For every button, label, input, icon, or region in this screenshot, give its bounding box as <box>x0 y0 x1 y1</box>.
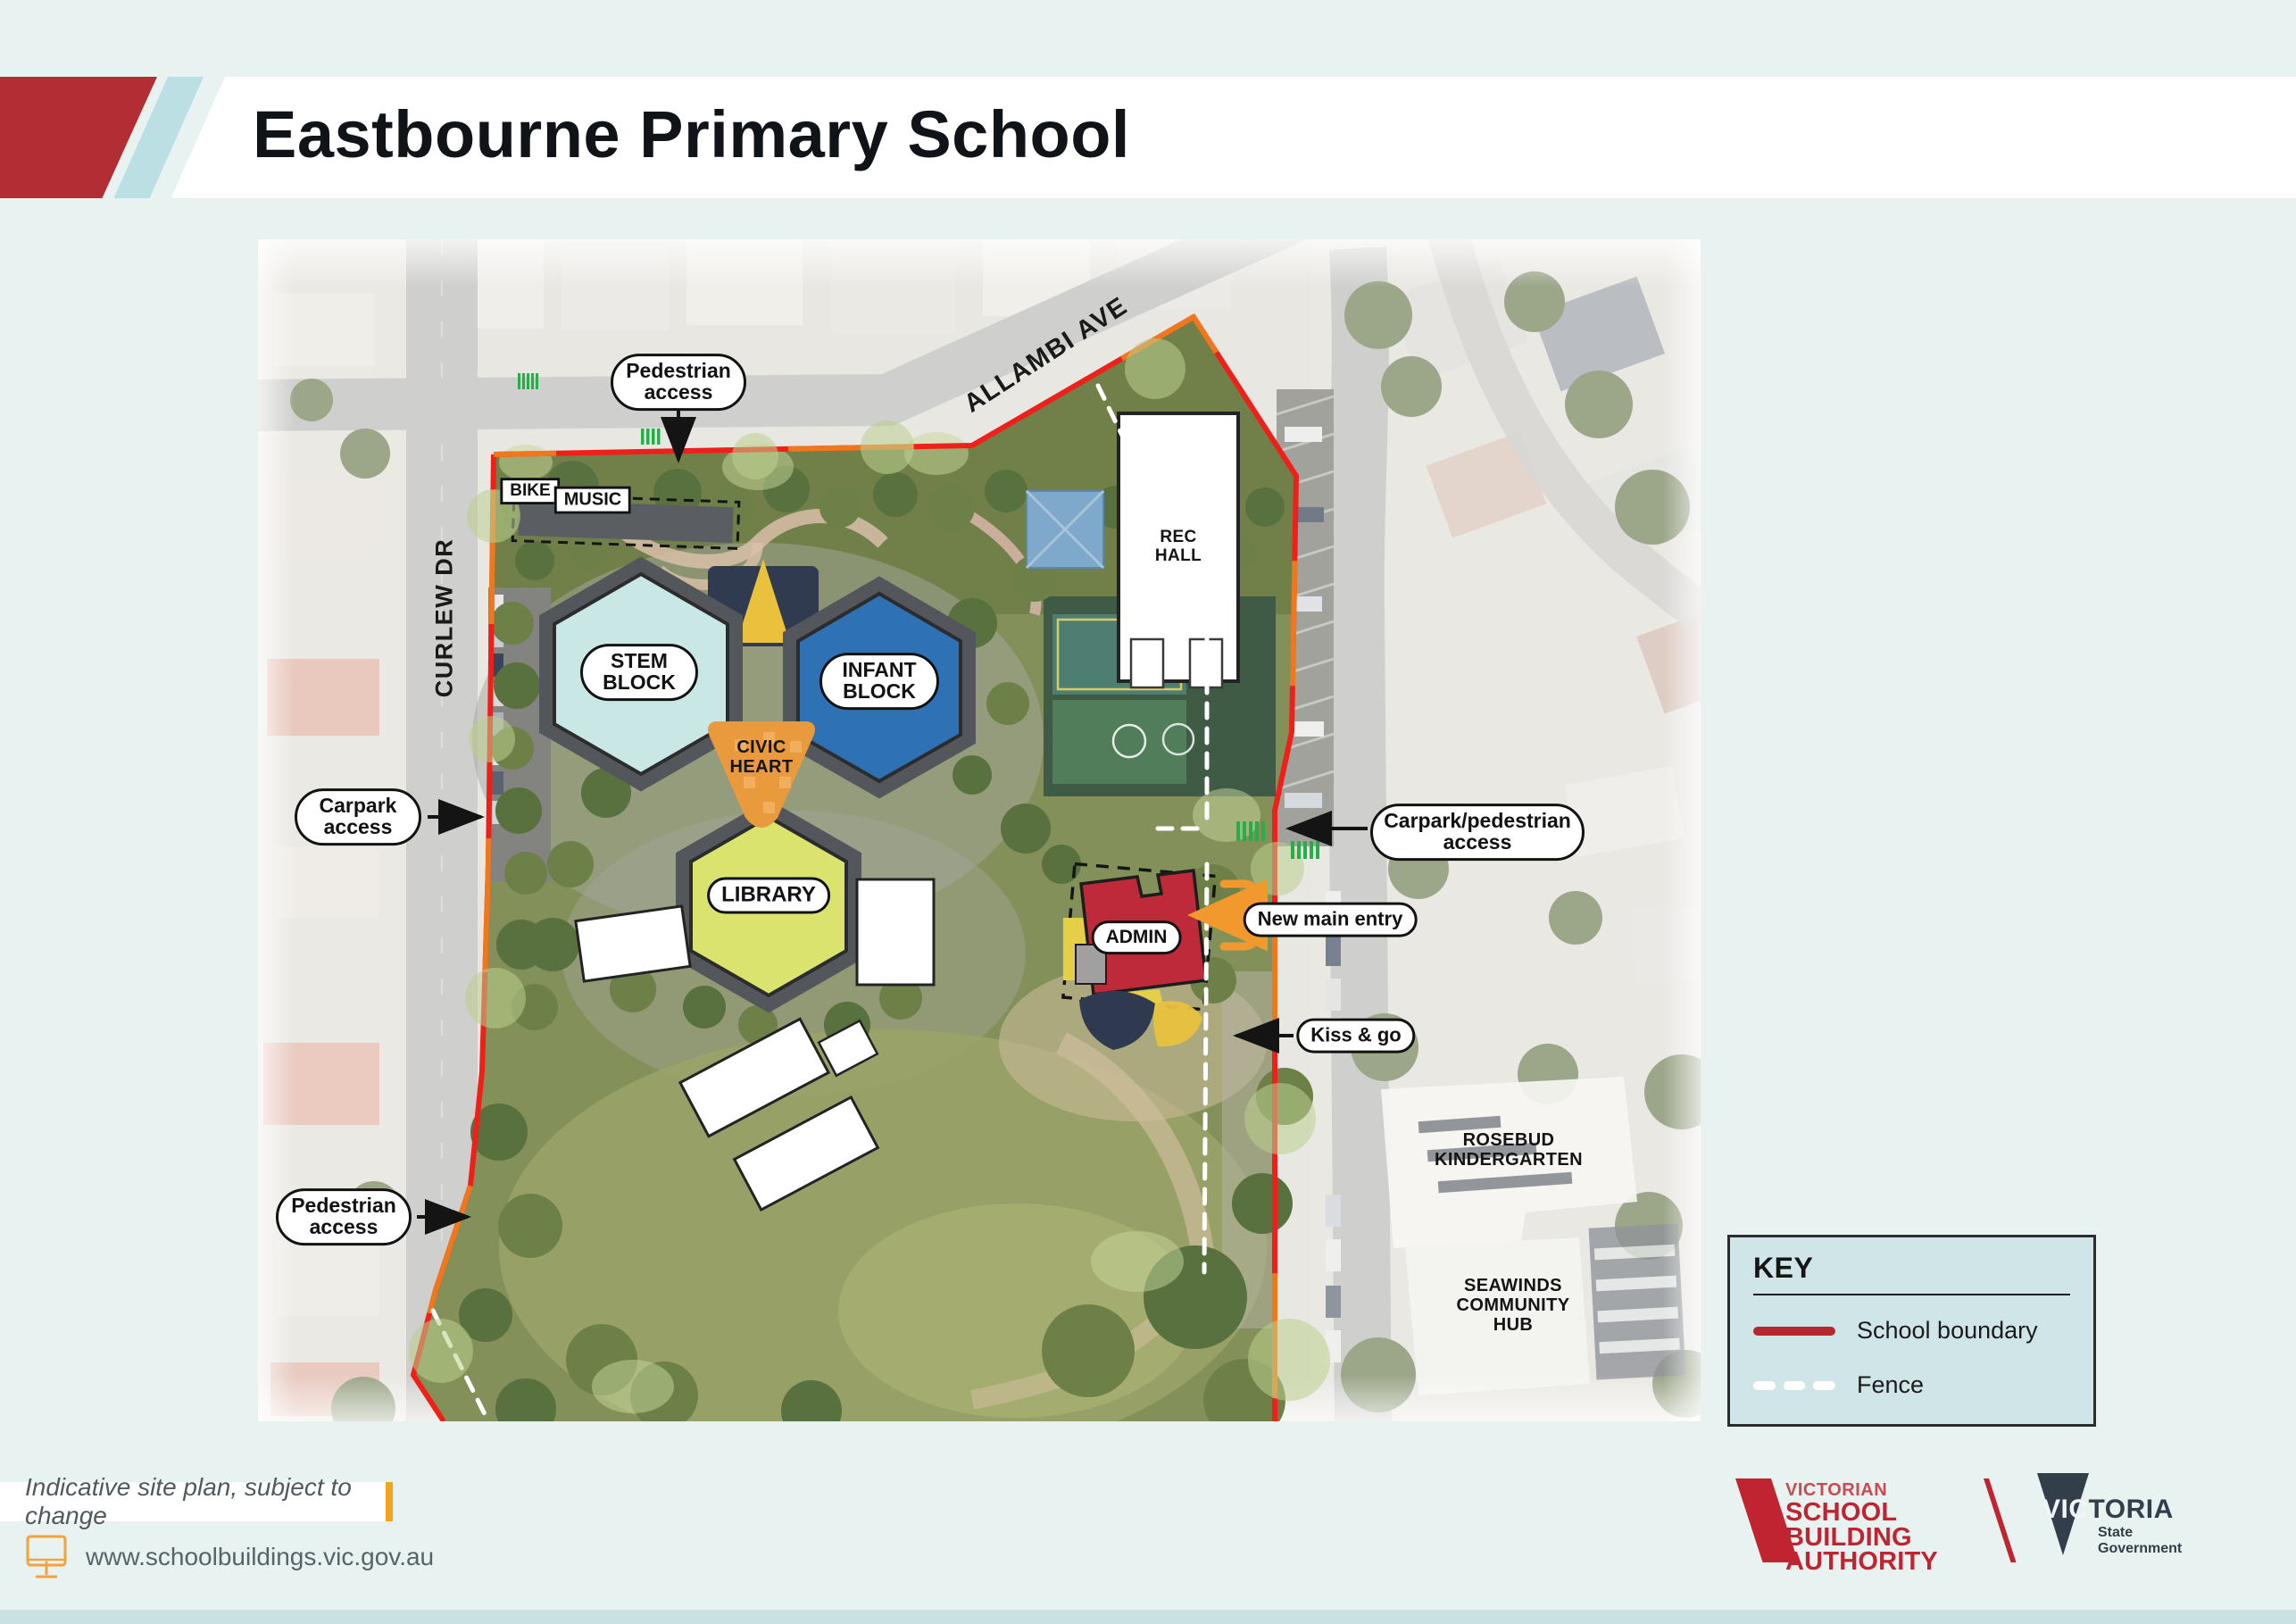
callout-carpark-access: Carpark access <box>295 788 421 845</box>
label-rec-hall: REC HALL <box>1138 529 1219 566</box>
label-library: LIBRARY <box>707 878 830 914</box>
disclaimer-accent-bar <box>386 1482 393 1521</box>
label-admin: ADMIN <box>1092 920 1182 954</box>
key-title: KEY <box>1753 1252 2070 1285</box>
school-boundary-swatch <box>1753 1327 1835 1336</box>
website-row: www.schoolbuildings.vic.gov.au <box>23 1532 434 1582</box>
label-stem-block: STEM BLOCK <box>580 644 698 701</box>
victoria-name-suffix: TORIA <box>2089 1495 2174 1524</box>
callout-carpark-pedestrian-access: Carpark/pedestrian access <box>1370 804 1585 861</box>
callout-new-main-entry: New main entry <box>1244 903 1418 937</box>
callout-kiss-and-go: Kiss & go <box>1296 1019 1415 1054</box>
label-infant-block: INFANT BLOCK <box>819 653 939 710</box>
aerial-site-map: Pedestrian access BIKE MUSIC STEM BLOCK … <box>258 239 1701 1421</box>
key-item-fence: Fence <box>1753 1371 2070 1399</box>
label-bike: BIKE <box>500 478 560 504</box>
map-key: KEY School boundary Fence <box>1727 1235 2096 1427</box>
callout-pedestrian-access-top: Pedestrian access <box>611 354 746 411</box>
victoria-name-prefix: VIC <box>2042 1495 2089 1524</box>
title-banner: Eastbourne Primary School <box>0 77 2296 198</box>
key-item-school-boundary: School boundary <box>1753 1317 2070 1345</box>
label-rosebud-kindergarten: ROSEBUD KINDERGARTEN <box>1413 1130 1605 1170</box>
disclaimer-text: Indicative site plan, subject to change <box>25 1473 386 1530</box>
victoria-sub1: State <box>2098 1525 2182 1541</box>
admin-shape <box>1063 864 1215 1050</box>
victoria-sub2: Government <box>2098 1541 2182 1557</box>
vsba-line3: AUTHORITY <box>1785 1550 2025 1575</box>
bottom-accent-strip <box>0 1610 2296 1624</box>
disclaimer-strip: Indicative site plan, subject to change <box>0 1482 386 1521</box>
label-civic-heart: CIVIC HEART <box>708 737 815 777</box>
victoria-state-logo: VICTORIA State Government <box>2019 1473 2198 1571</box>
label-seawinds-community-hub: SEAWINDS COMMUNITY HUB <box>1442 1276 1585 1335</box>
site-plan-page: Eastbourne Primary School <box>0 0 2296 1624</box>
website-url: www.schoolbuildings.vic.gov.au <box>86 1543 434 1571</box>
vsba-logo: VICTORIAN SCHOOL BUILDING AUTHORITY <box>1730 1478 2025 1568</box>
callout-pedestrian-access-bottom: Pedestrian access <box>276 1188 412 1245</box>
fence-swatch <box>1753 1381 1835 1390</box>
label-music: MUSIC <box>554 487 631 514</box>
monitor-icon <box>23 1532 70 1582</box>
blue-shelter <box>1027 491 1103 568</box>
key-divider <box>1753 1294 2070 1295</box>
street-curlew-dr: CURLEW DR <box>431 538 459 697</box>
page-title: Eastbourne Primary School <box>253 96 1130 172</box>
vsba-line2: SCHOOL BUILDING <box>1785 1501 2025 1550</box>
